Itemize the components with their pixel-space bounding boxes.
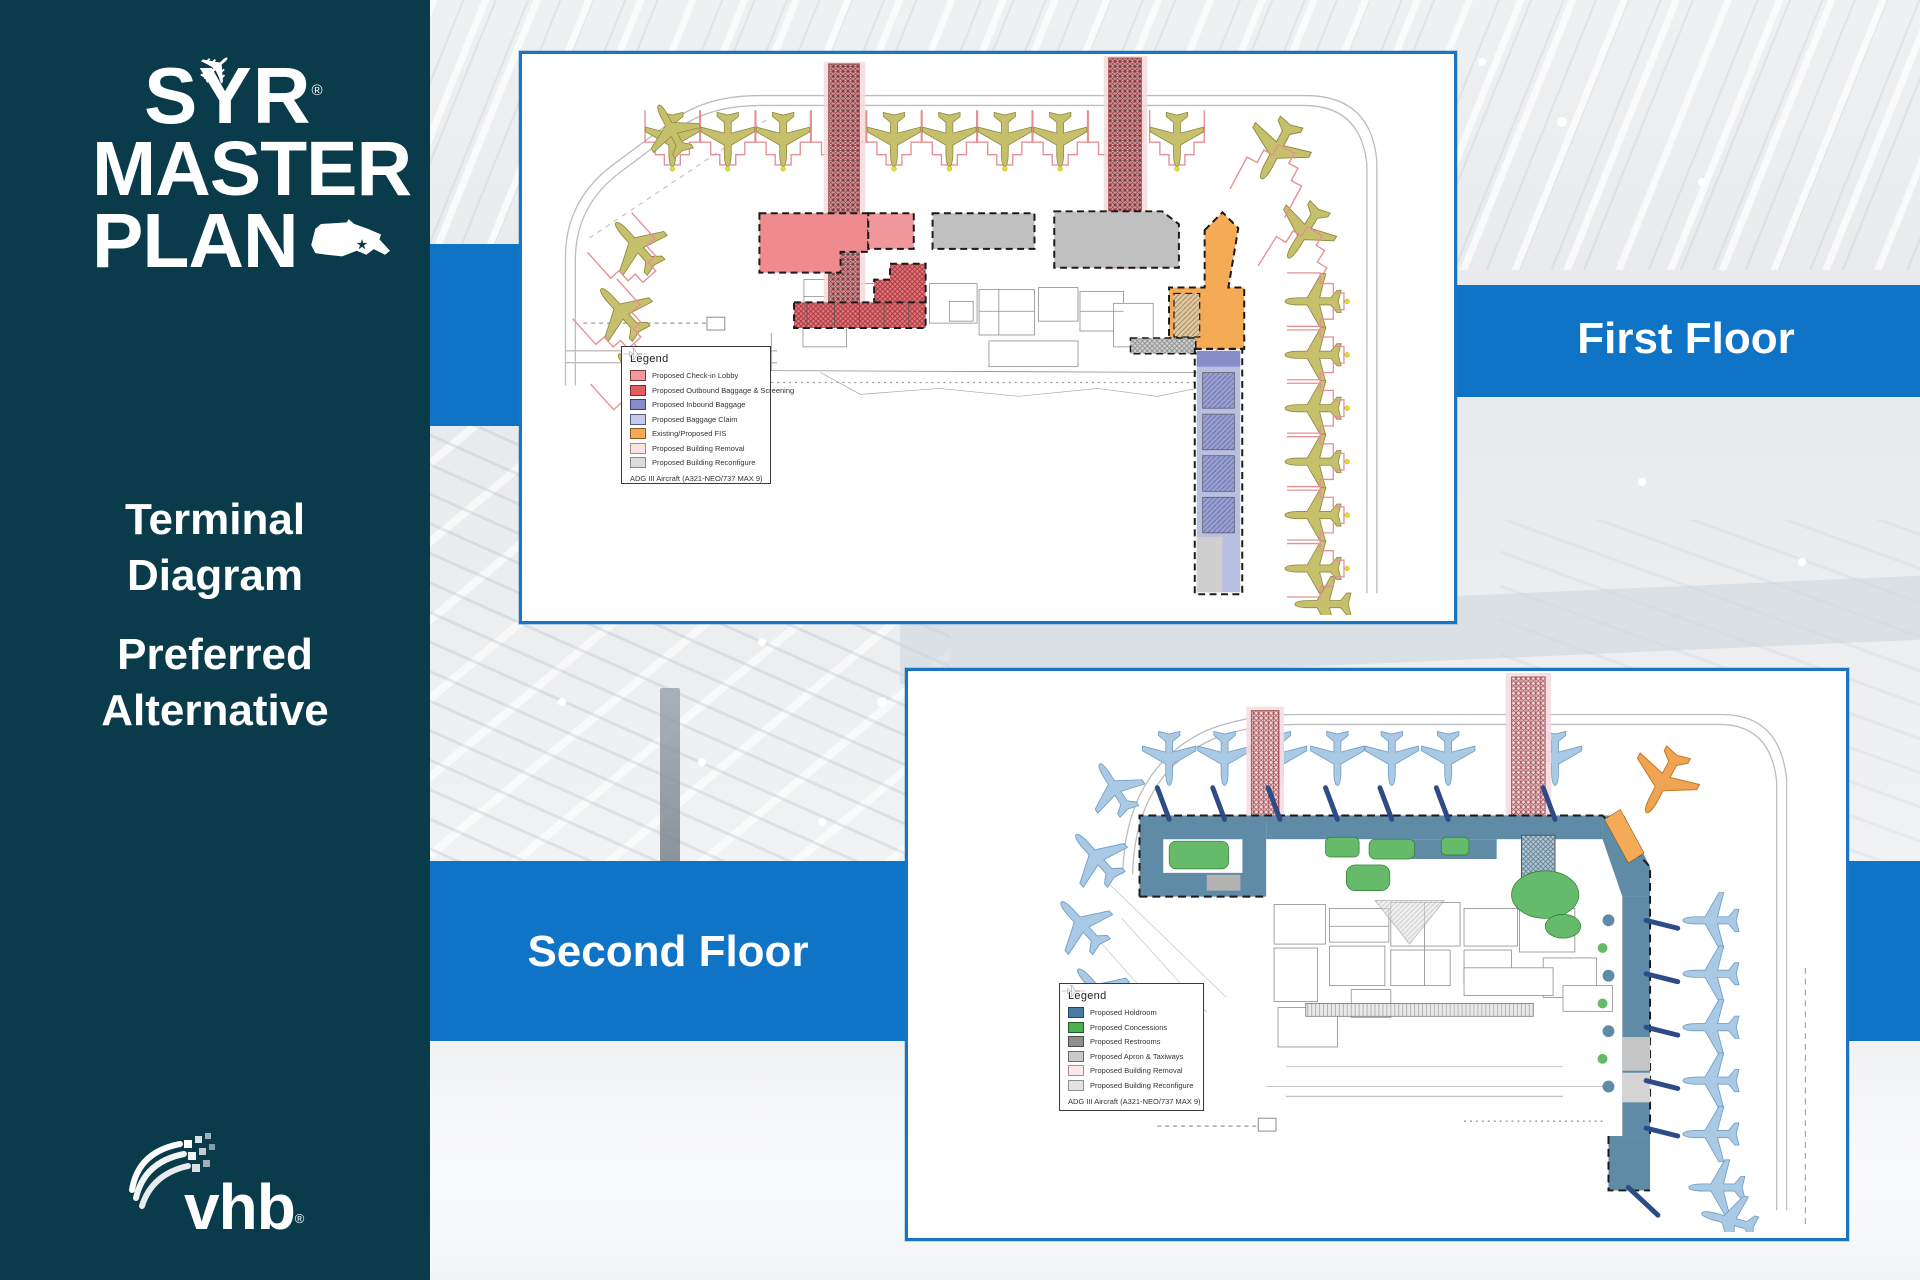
legend-item: Proposed Apron & Taxiways: [1068, 1051, 1195, 1062]
slide-title: Terminal Diagram Preferred Alternative: [0, 492, 430, 739]
aircraft-note: ADG III Aircraft (A321-NEO/737 MAX 9): [630, 474, 762, 483]
syr-master-plan-logo: ✈ SYR® MASTER PLAN ★: [92, 58, 392, 277]
zone-reconfigure-b: [1054, 211, 1179, 267]
legend-swatch: [630, 399, 646, 410]
aircraft-top-right: [1234, 107, 1346, 273]
aircraft-right: [1683, 893, 1763, 1232]
reconfigure-block: [1622, 1037, 1650, 1071]
legend-item: Existing/Proposed FIS: [630, 428, 762, 439]
second-floor-plan: [908, 671, 1840, 1232]
aircraft-right: [1285, 274, 1351, 615]
legend-swatch: [1068, 1007, 1084, 1018]
fuel-pins-top: [670, 166, 1179, 171]
second-floor-diagram-panel: Legend Proposed Holdroom Proposed Conces…: [905, 668, 1849, 1241]
legend-swatch: [1068, 1065, 1084, 1076]
logo-master: MASTER: [92, 134, 392, 206]
zone-reconfigure-a: [933, 213, 1035, 249]
legend-item: Proposed Building Removal: [1068, 1065, 1195, 1076]
first-floor-diagram-panel: Legend Proposed Check-in Lobby Proposed …: [519, 51, 1457, 624]
legend-item: Proposed Building Reconfigure: [630, 457, 762, 468]
title-terminal-diagram: Terminal Diagram: [0, 492, 430, 605]
zone-baggage-claim-band: [1195, 349, 1242, 594]
legend-swatch: [630, 443, 646, 454]
legend-swatch: [630, 385, 646, 396]
aircraft-icon: [1060, 984, 1086, 998]
zone-baggage-makeup: [794, 302, 926, 328]
zone-outbound-baggage: [874, 264, 925, 304]
logo-plan: PLAN: [92, 206, 298, 278]
zone-sterile-corridor: [1130, 338, 1195, 354]
gates-right: [1287, 273, 1344, 597]
logo-plan-row: PLAN ★: [92, 206, 392, 278]
first-floor-label: First Floor: [1451, 314, 1920, 364]
first-floor-plan: [522, 54, 1448, 615]
aircraft-note: ADG III Aircraft (A321-NEO/737 MAX 9): [1068, 1097, 1195, 1106]
zone-fis-secondary: [1174, 293, 1200, 337]
legend-item: Proposed Concessions: [1068, 1022, 1195, 1033]
legend-item: Proposed Baggage Claim: [630, 414, 762, 425]
legend-swatch: [630, 457, 646, 468]
legend-item: Proposed Outbound Baggage & Screening: [630, 385, 762, 396]
sidebar: ✈ SYR® MASTER PLAN ★ Terminal Diagram Pr…: [0, 0, 430, 1280]
zone-checkin-lobby-2: [868, 213, 914, 249]
pier2: [1512, 677, 1546, 821]
second-floor-label: Second Floor: [430, 927, 906, 977]
apron-roads: [565, 96, 1376, 594]
orange-aircraft: [1617, 737, 1708, 829]
aircraft-icon: [622, 347, 648, 361]
legend-title: Legend: [630, 353, 762, 365]
legend-title: Legend: [1068, 990, 1195, 1002]
photo-pillar: [660, 688, 680, 862]
legend-swatch: [1068, 1051, 1084, 1062]
restroom-block: [1207, 875, 1241, 891]
legend-item: Proposed Inbound Baggage: [630, 399, 762, 410]
legend-swatch: [630, 370, 646, 381]
slide: First Floor Second Floor: [0, 0, 1920, 1280]
legend-item: Proposed Holdroom: [1068, 1007, 1195, 1018]
fuel-pins-right: [1345, 299, 1350, 571]
legend-item: Proposed Restrooms: [1068, 1036, 1195, 1047]
first-floor-legend: Legend Proposed Check-in Lobby Proposed …: [621, 346, 771, 484]
new-york-state-icon: ★: [308, 211, 392, 271]
syracuse-star: ★: [356, 238, 367, 252]
vhb-wordmark: vhb®: [184, 1170, 303, 1244]
legend-swatch: [1068, 1022, 1084, 1033]
vhb-logo: vhb®: [122, 1128, 342, 1258]
title-preferred-alternative: Preferred Alternative: [0, 627, 430, 740]
legend-swatch: [630, 428, 646, 439]
legend-item: Proposed Building Removal: [630, 443, 762, 454]
second-floor-legend: Legend Proposed Holdroom Proposed Conces…: [1059, 983, 1204, 1111]
legend-item: Proposed Check-in Lobby: [630, 370, 762, 381]
reconfigure-block: [1622, 1073, 1650, 1103]
legend-item: Proposed Building Reconfigure: [1068, 1080, 1195, 1091]
legend-swatch: [1068, 1036, 1084, 1047]
legend-swatch: [1068, 1080, 1084, 1091]
legend-swatch: [630, 414, 646, 425]
